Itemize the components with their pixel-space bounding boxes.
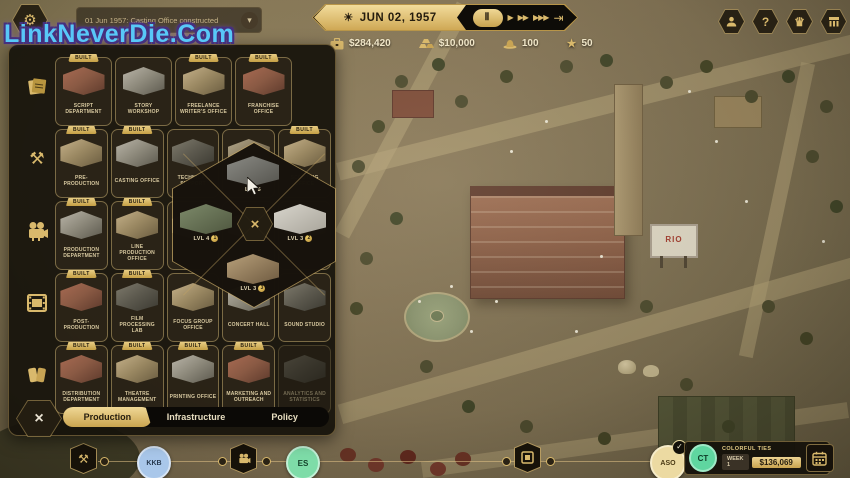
building-label: SCRIPT DEPARTMENT [56, 95, 111, 125]
speed-controls: Ⅱ ▶ ▶▶ ▶▶▶ ⇥ [470, 4, 566, 31]
built-badge: BUILT [66, 126, 97, 134]
script-notes-icon [26, 76, 48, 98]
building-label: CONCERT HALL [226, 311, 272, 341]
building-thumbnail [60, 283, 102, 311]
upgrade-option[interactable]: LVL 3 3 [227, 254, 279, 292]
building-thumbnail [123, 67, 165, 95]
influence-hat-icon [503, 39, 517, 49]
prep-category-icon[interactable]: ⚒ [23, 145, 51, 173]
game-screen: RIO ⚙ 01 Jun 1957: Casting Office constr… [0, 0, 850, 478]
project-week-badge: WEEK 1 [722, 454, 749, 470]
timeline-line [98, 461, 668, 462]
building-label: POST-PRODUCTION [56, 311, 107, 341]
building-label: FRANCHISE OFFICE [236, 95, 291, 125]
marquee-building-icon [828, 16, 840, 27]
building-thumbnail [60, 139, 102, 167]
gold-value: $10,000 [439, 38, 475, 49]
building-thumbnail [60, 355, 102, 383]
person-icon [726, 16, 737, 27]
preproduction-phase-icon[interactable]: ⚒ [70, 443, 97, 474]
cash-resource[interactable]: $284,420 [330, 38, 391, 50]
built-badge: BUILT [122, 198, 153, 206]
building-card[interactable]: BUILT PRE-PRODUCTION [55, 129, 108, 198]
current-date: JUN 02, 1957 [360, 12, 437, 24]
coin-badge: 2 [305, 235, 312, 242]
building-thumbnail [172, 355, 214, 383]
built-badge: BUILT [66, 198, 97, 206]
building-thumbnail [116, 139, 158, 167]
postprod-category-icon[interactable] [23, 289, 51, 317]
building-card-locked[interactable]: ANALYTICS AND STATISTICS [278, 345, 331, 414]
close-icon: × [251, 216, 260, 233]
top-right-buttons: ? ♛ [718, 9, 847, 34]
gold-resource[interactable]: $10,000 [419, 38, 475, 49]
building-label: CASTING OFFICE [113, 167, 162, 197]
upgrade-thumbnail [227, 254, 279, 284]
date-display: ☀ JUN 02, 1957 [314, 5, 466, 30]
project-title: COLORFUL TIES [722, 446, 801, 452]
building-card[interactable]: BUILT LINE PRODUCTION OFFICE [111, 201, 164, 270]
timeline-node [100, 457, 109, 466]
schedule-button[interactable] [806, 444, 834, 472]
building-thumbnail [116, 283, 158, 311]
filming-category-icon[interactable] [23, 217, 51, 245]
building-thumbnail [284, 355, 326, 383]
upgrade-option[interactable]: LVL 3 2 [274, 204, 326, 242]
building-label: LINE PRODUCTION OFFICE [112, 239, 163, 269]
time-control: ☀ JUN 02, 1957 Ⅱ ▶ ▶▶ ▶▶▶ ⇥ [312, 4, 578, 31]
close-icon: × [34, 410, 43, 428]
film-frame-icon [521, 451, 534, 464]
upgrade-label: LVL 3 [241, 286, 257, 292]
sun-icon: ☀ [343, 11, 353, 24]
timeline-node [502, 457, 511, 466]
built-badge: BUILT [289, 126, 320, 134]
coin-badge: 1 [211, 235, 218, 242]
pause-button[interactable]: Ⅱ [473, 9, 503, 27]
upgrade-option[interactable]: LVL 4 1 [180, 204, 232, 242]
building-card[interactable]: STORY WORKSHOP [115, 57, 172, 126]
cash-value: $284,420 [349, 38, 391, 49]
notification-collapse-button[interactable]: ▾ [241, 12, 258, 29]
upgrade-label: LVL 4 [194, 236, 210, 242]
timeline-node [262, 457, 271, 466]
built-badge: BUILT [122, 126, 153, 134]
building-label: FILM PROCESSING LAB [112, 311, 163, 341]
timeline-node [546, 457, 555, 466]
reputation-resource[interactable]: ★ 50 [567, 37, 593, 50]
crossed-tools-icon: ⚒ [78, 452, 89, 466]
building-card[interactable]: BUILT DISTRIBUTION DEPARTMENT [55, 345, 108, 414]
upgrade-thumbnail [180, 204, 232, 234]
built-badge: BUILT [68, 54, 99, 62]
fast-forward-button[interactable]: ▶▶ [518, 13, 528, 22]
building-card[interactable]: BUILT FRANCHISE OFFICE [235, 57, 292, 126]
chevron-down-icon: ▾ [247, 15, 252, 26]
building-thumbnail [116, 355, 158, 383]
coin-badge: 3 [258, 285, 265, 292]
building-thumbnail [183, 67, 225, 95]
building-label: PRE-PRODUCTION [56, 167, 107, 197]
building-thumbnail [243, 67, 285, 95]
build-menu-tabs: Production Infrastructure Policy [63, 407, 329, 427]
awards-button[interactable]: ♛ [786, 9, 813, 34]
postproduction-phase-icon[interactable] [514, 442, 541, 473]
film-strip-icon [26, 293, 48, 313]
mouse-cursor [247, 177, 261, 201]
built-badge: BUILT [66, 270, 97, 278]
project-budget: $136,069 [752, 457, 801, 468]
star-icon: ★ [567, 37, 577, 50]
building-label: STORY WORKSHOP [116, 95, 171, 125]
help-button[interactable]: ? [752, 9, 779, 34]
build-row-scripts: BUILT SCRIPT DEPARTMENT STORY WORKSHOP B… [55, 57, 331, 127]
built-badge: BUILT [233, 342, 264, 350]
upgrade-label: LVL 3 [288, 236, 304, 242]
studio-button[interactable] [820, 9, 847, 34]
built-badge: BUILT [178, 342, 209, 350]
building-card[interactable]: BUILT SCRIPT DEPARTMENT [55, 57, 112, 126]
movie-camera-icon [237, 453, 251, 465]
question-icon: ? [762, 15, 769, 29]
skip-to-event-button[interactable]: ⇥ [553, 11, 563, 25]
building-thumbnail [228, 355, 270, 383]
milestone-kkb[interactable]: KKB [137, 446, 171, 478]
movie-camera-icon [25, 221, 49, 241]
build-row-distribution: BUILT DISTRIBUTION DEPARTMENT BUILT THEA… [55, 345, 331, 415]
project-info: COLORFUL TIES WEEK 1 $136,069 [722, 446, 801, 470]
building-thumbnail [63, 67, 105, 95]
building-label: FREELANCE WRITER'S OFFICE [176, 95, 231, 125]
watermark: LinkNeverDie.Com [4, 20, 234, 49]
upgrade-thumbnail [274, 204, 326, 234]
milestone-ct: CT [689, 444, 717, 472]
building-thumbnail [60, 211, 102, 239]
crown-icon: ♛ [794, 15, 805, 29]
built-badge: BUILT [122, 342, 153, 350]
filming-phase-icon[interactable] [230, 443, 257, 474]
built-badge: BUILT [122, 270, 153, 278]
crossed-tools-icon: ⚒ [29, 149, 44, 169]
tab-production[interactable]: Production [63, 407, 152, 427]
building-label: SOUND STUDIO [282, 311, 327, 341]
timeline-node [218, 457, 227, 466]
calendar-icon [812, 451, 827, 466]
scripts-category-icon[interactable] [23, 73, 51, 101]
building-label: PRODUCTION DEPARTMENT [56, 239, 107, 269]
tab-infrastructure[interactable]: Infrastructure [152, 412, 241, 422]
gold-bars-icon [419, 38, 434, 49]
building-card[interactable]: BUILT MARKETING AND OUTREACH [222, 345, 275, 414]
distribution-category-icon[interactable] [23, 361, 51, 389]
building-thumbnail [116, 211, 158, 239]
built-badge: BUILT [66, 342, 97, 350]
profile-button[interactable] [718, 9, 745, 34]
building-card[interactable]: BUILT POST-PRODUCTION [55, 273, 108, 342]
building-card[interactable]: BUILT PRODUCTION DEPARTMENT [55, 201, 108, 270]
influence-value: 100 [522, 38, 539, 49]
building-card[interactable]: BUILT CASTING OFFICE [111, 129, 164, 198]
milestone-es[interactable]: ES [286, 446, 320, 478]
tab-policy[interactable]: Policy [240, 412, 329, 422]
building-card[interactable]: BUILT FILM PROCESSING LAB [111, 273, 164, 342]
active-project-panel[interactable]: CT COLORFUL TIES WEEK 1 $136,069 [684, 441, 830, 475]
built-badge: BUILT [188, 54, 219, 62]
tickets-icon [26, 365, 48, 385]
influence-resource[interactable]: 100 [503, 38, 539, 49]
building-card[interactable]: BUILT PRINTING OFFICE [167, 345, 220, 414]
fastest-button[interactable]: ▶▶▶ [533, 13, 548, 22]
built-badge: BUILT [248, 54, 279, 62]
reputation-value: 50 [581, 38, 592, 49]
building-label: FOCUS GROUP OFFICE [168, 311, 219, 341]
resource-bar: $284,420 $10,000 100 ★ 50 [330, 37, 593, 50]
production-timeline-bar: ⚒ KKB ES ASO ✓ CT COLORFUL TIES WEEK 1 $… [0, 438, 850, 478]
play-button[interactable]: ▶ [508, 13, 513, 22]
building-card[interactable]: BUILT THEATRE MANAGEMENT [111, 345, 164, 414]
building-card[interactable]: BUILT FREELANCE WRITER'S OFFICE [175, 57, 232, 126]
